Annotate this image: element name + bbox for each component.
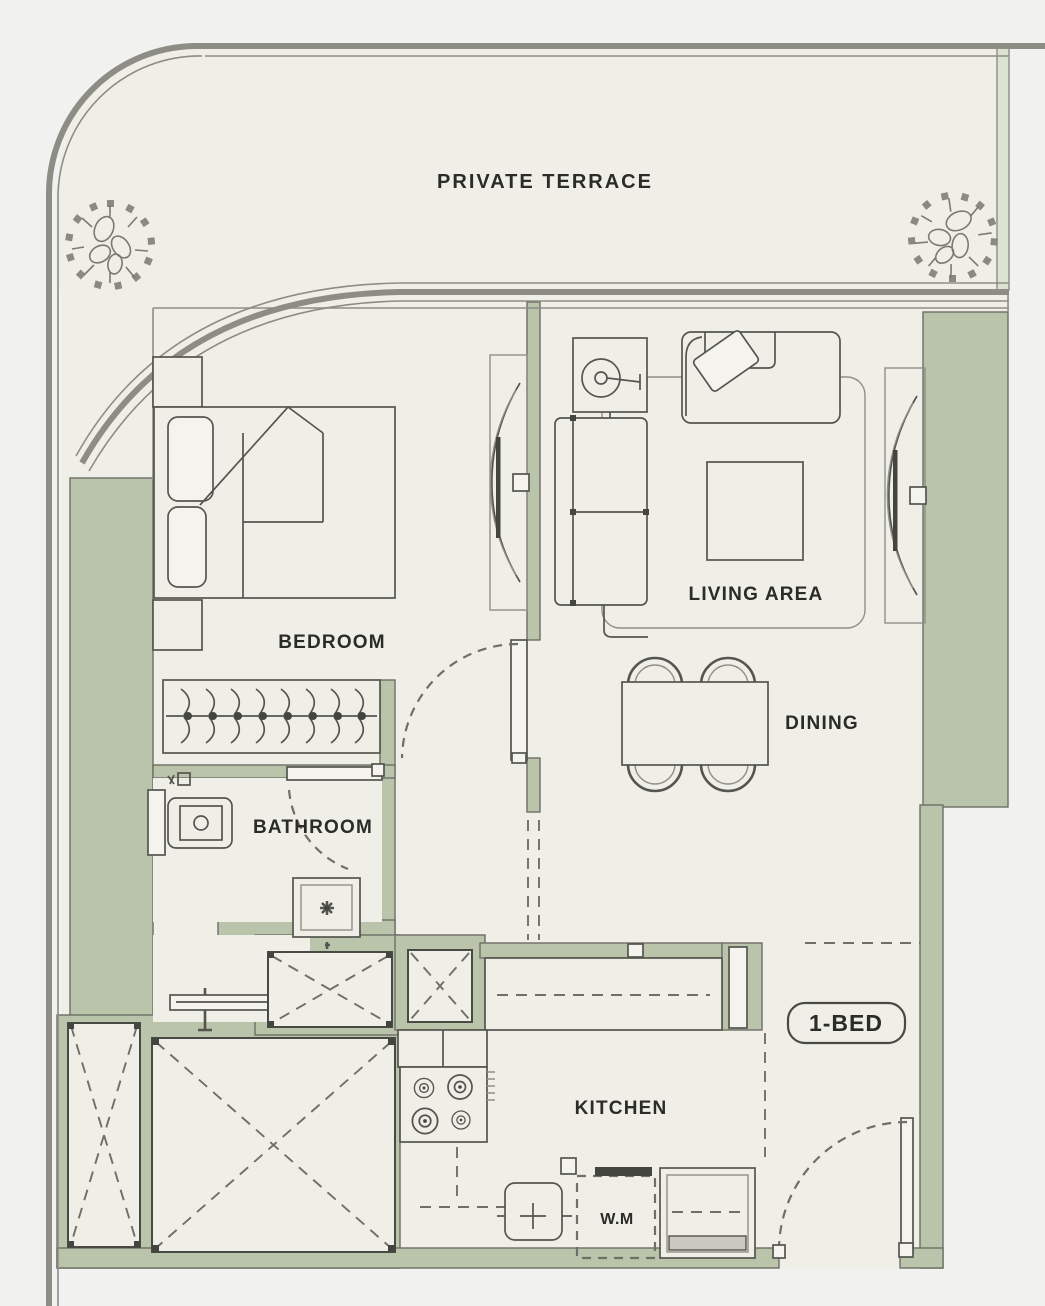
kitchen-label: KITCHEN	[575, 1098, 668, 1119]
shaft-box	[408, 950, 472, 1022]
bathroom-label: BATHROOM	[253, 817, 373, 838]
dining-table	[622, 682, 768, 765]
nightstand	[153, 600, 202, 650]
shaft-box	[268, 952, 392, 1027]
terrace-label: PRIVATE TERRACE	[437, 171, 653, 193]
bathroom-niche	[148, 790, 165, 855]
shaft-box	[152, 1038, 395, 1252]
wm-label: W.M	[600, 1211, 634, 1228]
pillow	[168, 507, 206, 587]
nightstand	[153, 357, 202, 407]
floor-plan-drawing: W.M PRIVATE TERRACE BEDROOM LIVING AREA …	[0, 0, 1045, 1306]
socket-icon	[561, 1158, 576, 1174]
floor-plan: W.M PRIVATE TERRACE BEDROOM LIVING AREA …	[0, 0, 1045, 1306]
kitchen-sink	[497, 1183, 572, 1240]
terrace-floor	[57, 44, 1009, 290]
pillow	[168, 417, 213, 501]
loveseat	[555, 415, 649, 637]
kitchen-wall-slot	[628, 944, 643, 957]
wardrobe	[163, 680, 380, 753]
unit-badge: 1-BED	[788, 1003, 905, 1043]
fridge	[660, 1168, 755, 1258]
bedroom-label: BEDROOM	[278, 632, 386, 653]
coffee-table	[707, 462, 803, 560]
hall-door-jamb	[729, 947, 747, 1028]
unit-badge-label: 1-BED	[809, 1010, 883, 1036]
dining-label: DINING	[785, 713, 859, 734]
sofa	[682, 329, 840, 423]
side-table	[573, 338, 647, 412]
bathroom-sink	[168, 798, 232, 848]
stove	[400, 1067, 495, 1142]
shaft-box	[68, 1023, 140, 1247]
living-label: LIVING AREA	[689, 584, 824, 605]
kitchen-upper-counter	[485, 958, 722, 1030]
